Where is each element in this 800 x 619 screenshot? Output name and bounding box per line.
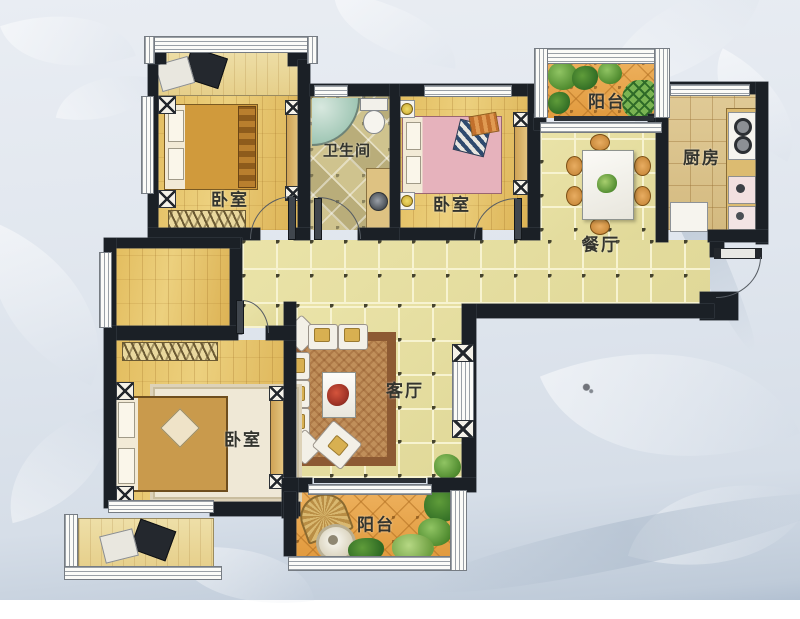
bed-pillow: [168, 148, 184, 180]
lamp: [401, 103, 413, 115]
wall: [708, 230, 768, 242]
tv-cabinet: [270, 392, 284, 478]
nightstand-lamp: [116, 382, 134, 400]
sink-bowl: [369, 192, 388, 211]
label-dining: 餐厅: [582, 231, 620, 256]
balcony-top-railing: [534, 48, 670, 64]
sofa-pillow: [344, 328, 360, 342]
cabinet-end: [269, 386, 285, 401]
wall: [390, 84, 400, 240]
label-living: 客厅: [386, 377, 424, 402]
dining-chair: [634, 156, 651, 176]
floor-hallway: [242, 240, 710, 304]
bed-pillow: [406, 122, 421, 150]
floorplan-canvas: 卧室 卫生间 卧室 阳台 厨房 餐厅 客厅 卧室 阳台: [0, 0, 800, 600]
label-bathroom: 卫生间: [323, 140, 371, 161]
window: [670, 84, 750, 96]
nightstand-lamp: [158, 190, 176, 208]
potted-plant: [434, 454, 461, 479]
bay-window-side: [307, 36, 318, 64]
balcony-bottom-railing: [288, 556, 462, 571]
wardrobe: [122, 342, 218, 361]
balcony-top-railing: [654, 48, 670, 118]
burner: [734, 118, 752, 136]
dining-chair: [566, 186, 583, 206]
wardrobe: [168, 210, 246, 229]
table-centerpiece: [597, 174, 617, 193]
dining-chair: [566, 156, 583, 176]
window: [141, 96, 154, 194]
bed-pillow: [168, 110, 184, 142]
cabinet-end: [513, 180, 529, 195]
wall: [108, 238, 240, 248]
wall: [756, 82, 768, 244]
wall: [104, 326, 116, 508]
label-balcony-bottom: 阳台: [357, 511, 395, 536]
bed-pillow: [118, 402, 135, 438]
bay-window-top-frame: [144, 36, 318, 53]
bay-window-side: [144, 36, 155, 64]
wall: [462, 304, 714, 318]
cabinet-end: [513, 112, 529, 127]
bay-window-master-opening: [108, 500, 214, 513]
window: [99, 252, 112, 328]
faucet: [736, 184, 745, 193]
wall: [104, 326, 238, 340]
dining-chair: [590, 134, 610, 151]
trellis-plant: [622, 80, 656, 118]
nightstand-lamp: [158, 96, 176, 114]
bay-window-master-frame: [64, 566, 222, 580]
floor-side-room: [116, 248, 230, 328]
window-end: [452, 344, 474, 362]
label-bedroom-master: 卧室: [224, 426, 262, 451]
label-kitchen: 厨房: [683, 144, 721, 169]
label-balcony-top: 阳台: [588, 88, 626, 113]
background-leaf: [540, 294, 800, 515]
wall: [520, 228, 540, 240]
bed-pillow: [118, 448, 135, 484]
dining-chair: [634, 186, 651, 206]
lamp: [401, 195, 413, 207]
burner: [734, 136, 752, 154]
ink-smudge: [580, 380, 596, 396]
sliding-door-track: [314, 478, 426, 483]
window-end: [452, 420, 474, 438]
wall: [656, 114, 668, 242]
bed-pillow: [406, 156, 421, 184]
table-center: [328, 535, 338, 545]
toilet-bowl: [363, 110, 385, 134]
sliding-door: [308, 484, 432, 495]
unit-knob: [736, 212, 744, 220]
dresser: [514, 118, 528, 188]
background-leaf: [56, 63, 154, 134]
balcony-bottom-railing: [450, 490, 467, 571]
wall: [266, 326, 296, 340]
door-arc-entry: [716, 257, 761, 298]
bed-runner: [238, 106, 256, 188]
potted-plant: [598, 62, 622, 84]
label-bedroom-top-left: 卧室: [211, 186, 249, 211]
window: [314, 85, 348, 97]
sliding-door: [540, 122, 662, 133]
wall: [294, 228, 310, 240]
wall: [400, 228, 482, 240]
wall: [298, 60, 310, 240]
label-bedroom-top-right: 卧室: [433, 191, 471, 216]
wall: [284, 492, 296, 556]
background-leaf: [326, 0, 463, 69]
wall: [358, 228, 400, 240]
sofa-pillow: [314, 328, 330, 342]
sliding-door-track: [554, 116, 654, 121]
balcony-top-railing: [534, 48, 548, 118]
window: [424, 85, 512, 97]
refrigerator: [670, 202, 708, 232]
